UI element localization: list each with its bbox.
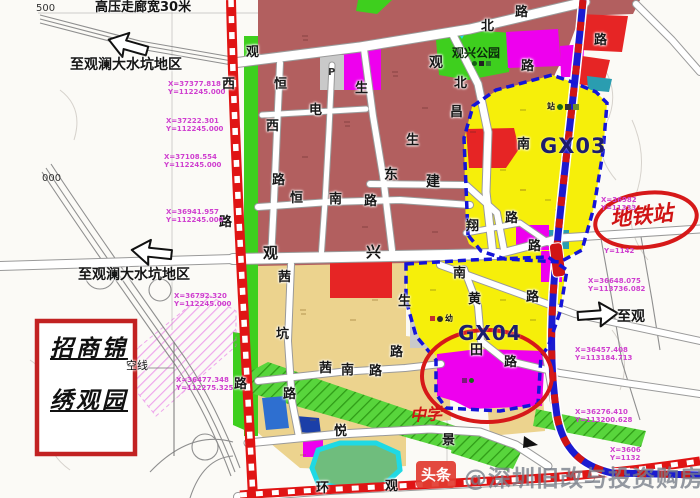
planning-map: 高压走廊宽30米 500 000 至观澜大水坑地区 至观澜大水坑地区 至观 观兴… bbox=[0, 0, 700, 498]
map-canvas bbox=[0, 0, 700, 498]
zone-school bbox=[437, 349, 545, 409]
project-box bbox=[37, 321, 135, 454]
